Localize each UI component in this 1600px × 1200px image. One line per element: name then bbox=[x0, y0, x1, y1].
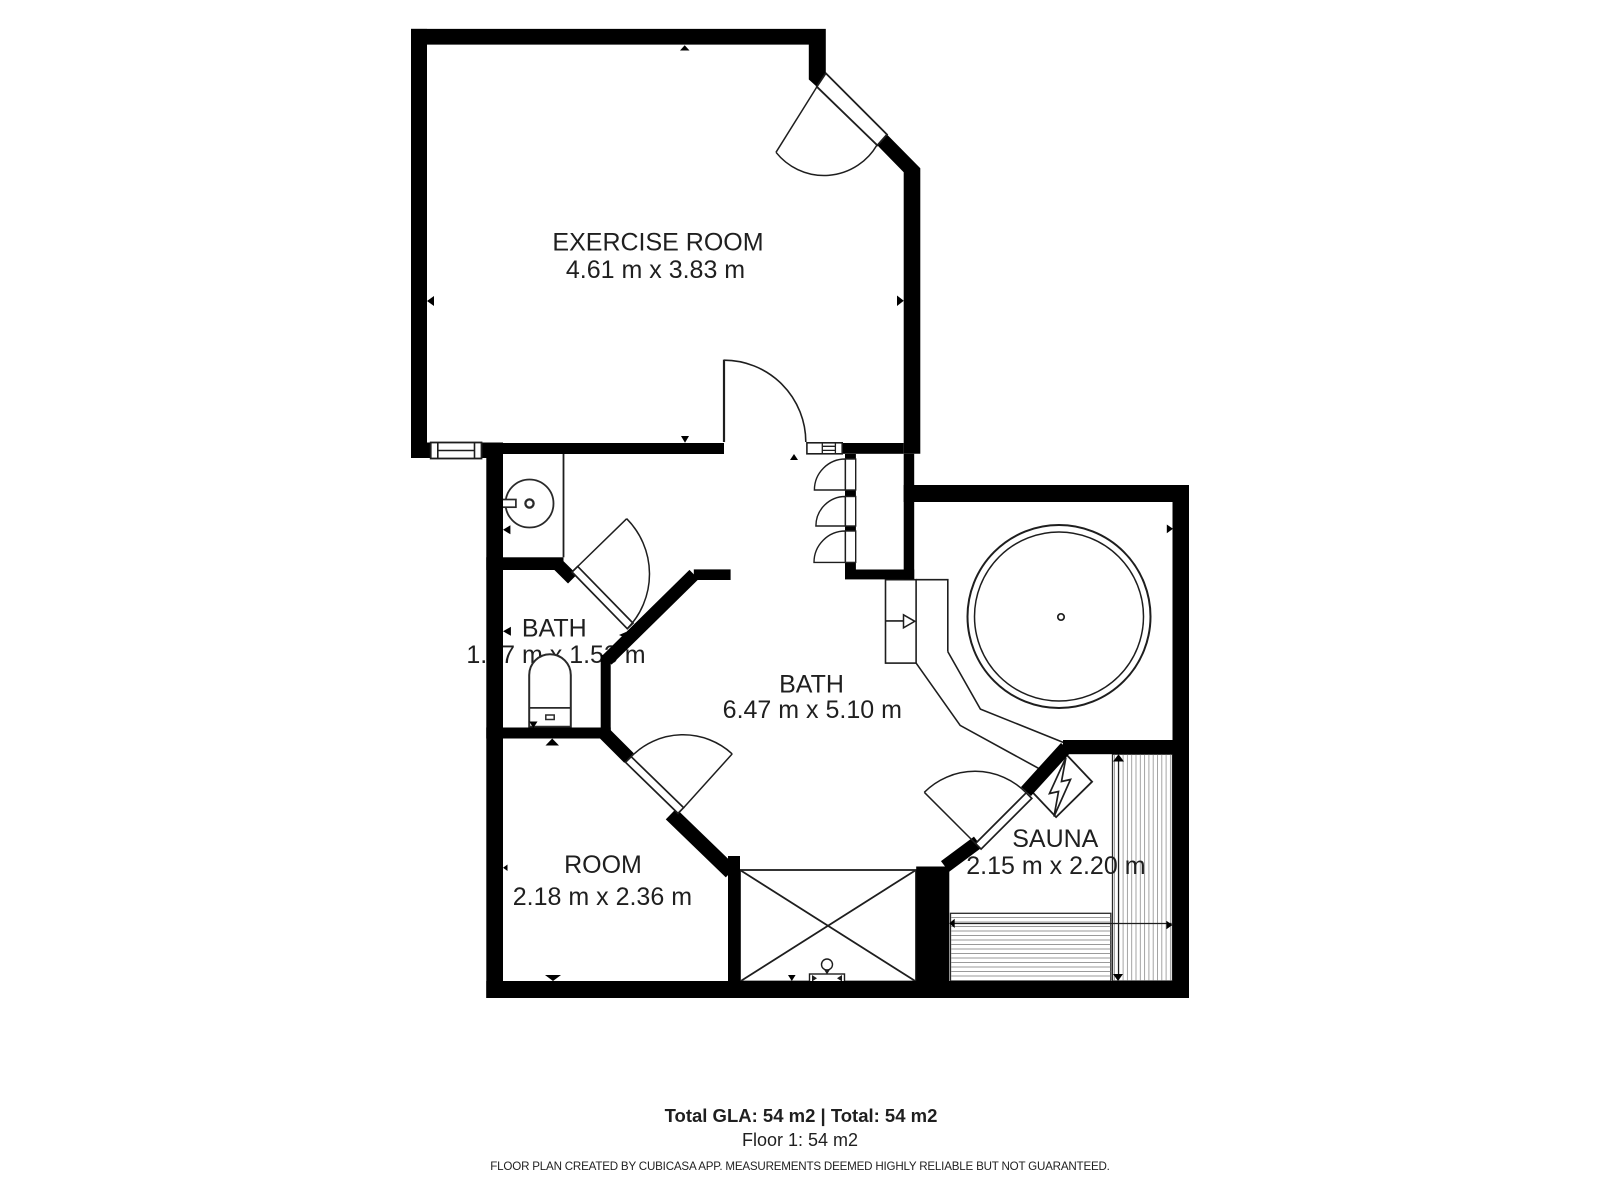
svg-text:Total GLA: 54 m2 | Total: 54 m: Total GLA: 54 m2 | Total: 54 m2 bbox=[665, 1105, 938, 1126]
svg-text:FLOOR PLAN CREATED BY CUBICASA: FLOOR PLAN CREATED BY CUBICASA APP. MEAS… bbox=[490, 1160, 1109, 1173]
svg-text:6.47 m x 5.10 m: 6.47 m x 5.10 m bbox=[723, 696, 902, 724]
svg-text:ROOM: ROOM bbox=[564, 851, 642, 879]
svg-text:2.18 m x 2.36 m: 2.18 m x 2.36 m bbox=[513, 883, 692, 911]
svg-text:BATH: BATH bbox=[522, 615, 587, 643]
svg-text:EXERCISE ROOM: EXERCISE ROOM bbox=[552, 229, 763, 257]
svg-text:SAUNA: SAUNA bbox=[1012, 825, 1098, 853]
svg-text:4.61 m x 3.83 m: 4.61 m x 3.83 m bbox=[566, 256, 745, 284]
svg-text:BATH: BATH bbox=[779, 671, 844, 699]
svg-text:Floor 1: 54 m2: Floor 1: 54 m2 bbox=[742, 1130, 858, 1150]
